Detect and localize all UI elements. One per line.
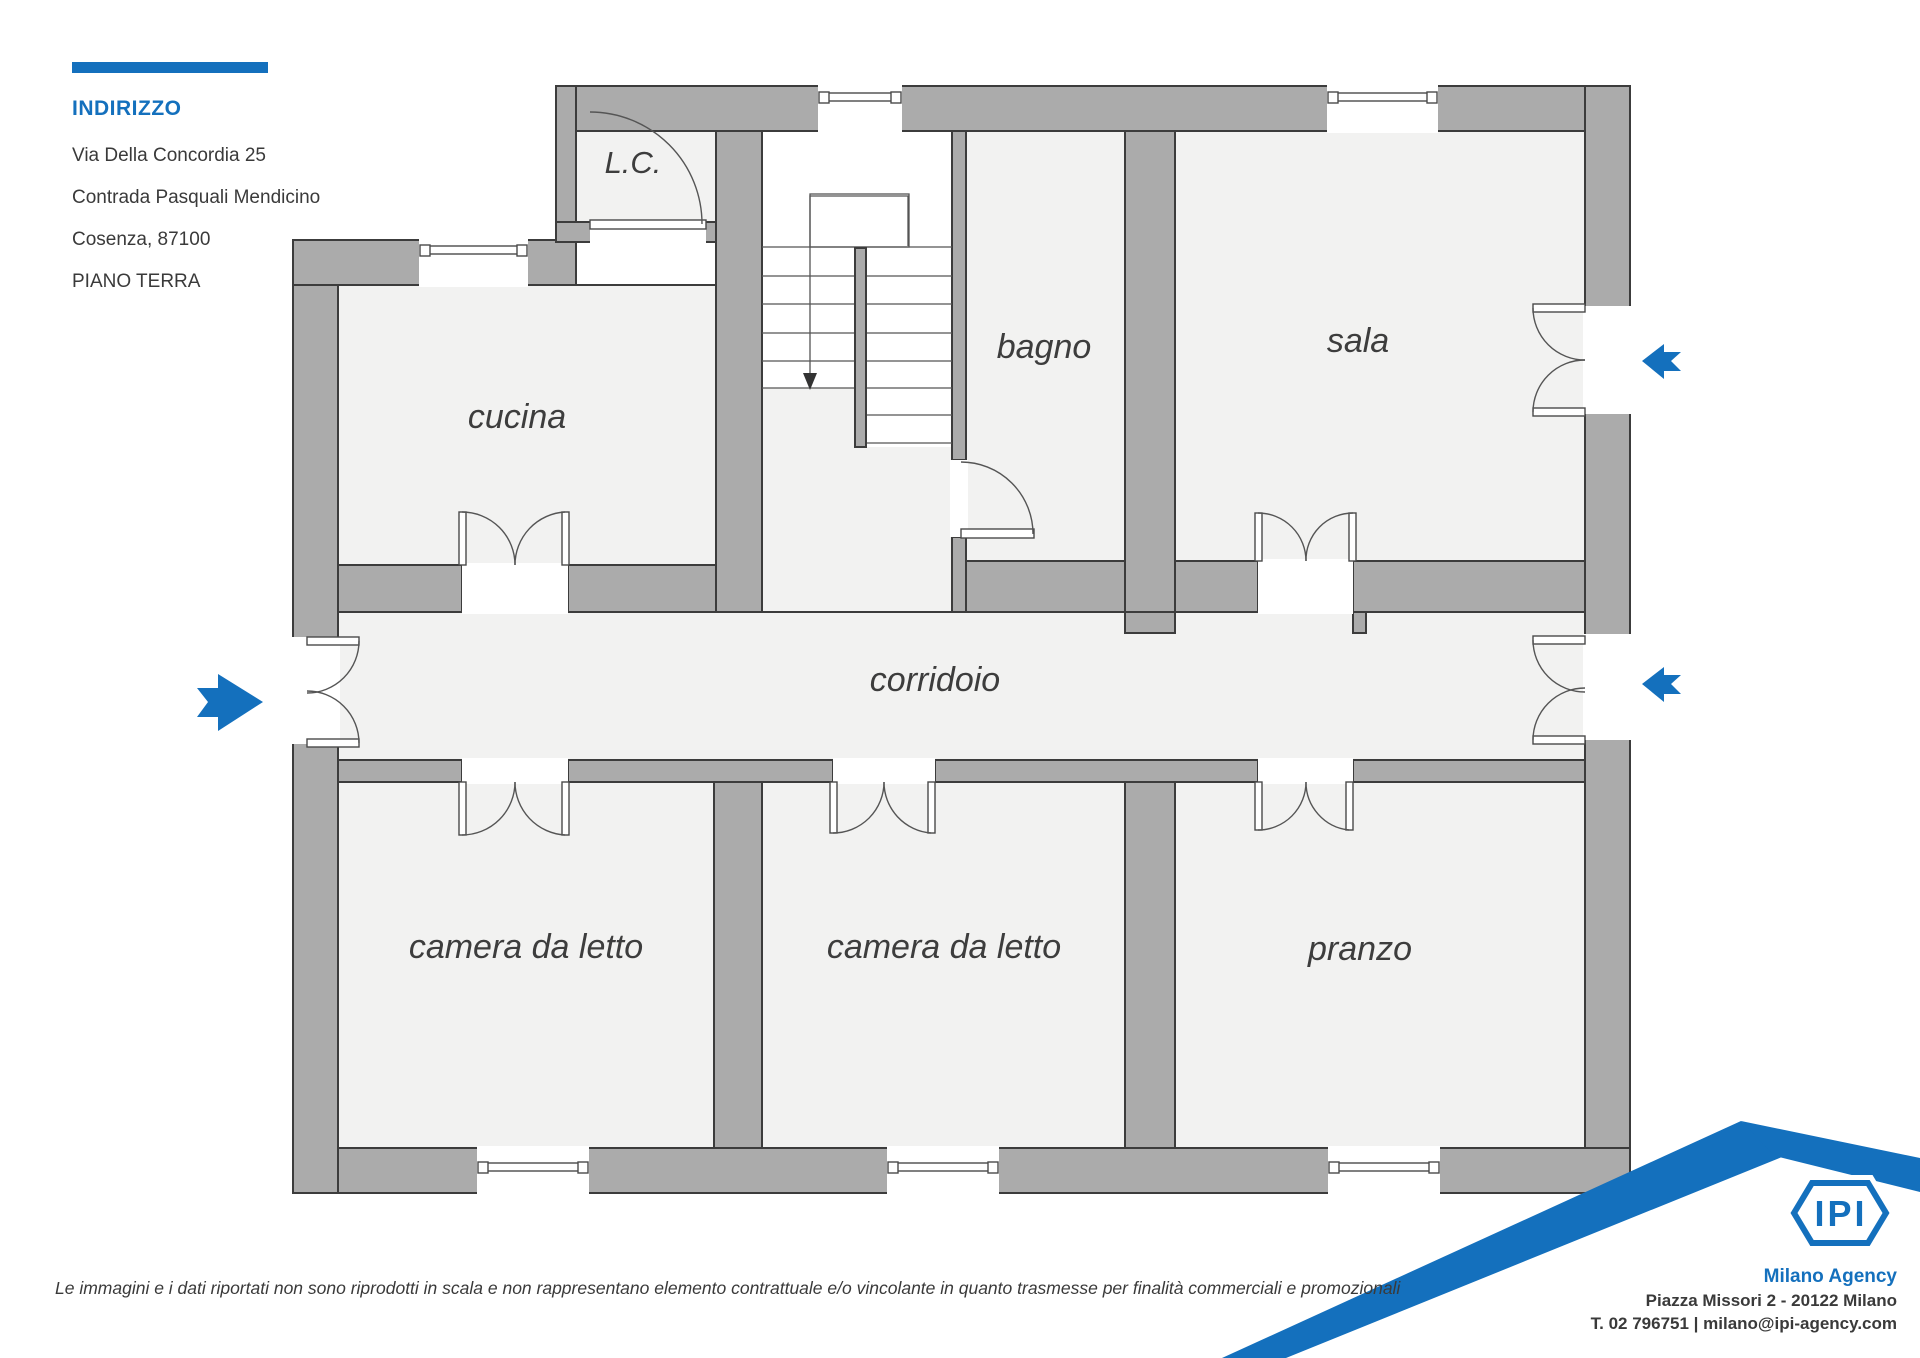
wall-corridor-bottom-a (338, 760, 462, 782)
window-camera2-icon (888, 1162, 998, 1173)
disclaimer-text: Le immagini e i dati riportati non sono … (55, 1278, 1405, 1299)
address-heading: INDIRIZZO (72, 97, 392, 121)
address-line-1: Via Della Concordia 25 (72, 145, 392, 167)
wall-corridor-bottom-d (1353, 760, 1585, 782)
agency-contact: T. 02 796751 | milano@ipi-agency.com (1591, 1314, 1897, 1334)
address-line-2: Contrada Pasquali Mendicino (72, 187, 392, 209)
label-corridoio: corridoio (870, 661, 1000, 699)
label-camera2: camera da letto (827, 928, 1061, 966)
wall-cameras-divider (714, 782, 762, 1148)
agency-address: Piazza Missori 2 - 20122 Milano (1591, 1291, 1897, 1311)
label-pranzo: pranzo (1307, 930, 1412, 968)
label-camera1: camera da letto (409, 928, 643, 966)
window-sala-icon (1328, 92, 1437, 103)
wall-corridor-top-c (966, 561, 1258, 612)
wall-corridor-bottom-c (935, 760, 1258, 782)
label-bagno: bagno (997, 328, 1092, 366)
wall-bagno-left-stub (952, 537, 966, 612)
window-pranzo-icon (1329, 1162, 1439, 1173)
wall-stub-sala-door (1353, 612, 1366, 633)
label-lc: L.C. (605, 145, 662, 180)
wall-corridor-bottom-b (568, 760, 833, 782)
address-block: INDIRIZZO Via Della Concordia 25 Contrad… (72, 62, 392, 313)
corridor-left-arrow-icon (1642, 667, 1681, 702)
address-accent-bar (72, 62, 268, 73)
ipi-logo-text: IPI (1814, 1193, 1867, 1234)
wall-camera-pranzo (1125, 782, 1175, 1148)
agency-block: Milano Agency Piazza Missori 2 - 20122 M… (1591, 1266, 1897, 1337)
entrance-right-arrow-icon (197, 674, 263, 731)
page: L.C. cucina bagno sala corridoio camera … (0, 0, 1920, 1358)
stair-rail (855, 248, 866, 447)
sala-left-arrow-icon (1642, 344, 1681, 379)
wall-stair-left (716, 131, 762, 612)
wall-corridor-top-d (1353, 561, 1585, 612)
wall-top (556, 86, 1630, 131)
floor-label: PIANO TERRA (72, 271, 392, 293)
agency-name: Milano Agency (1591, 1266, 1897, 1288)
wall-bagno-left (952, 131, 966, 460)
wall-corridor-top-a (338, 565, 462, 612)
wall-lc-left (556, 86, 576, 240)
label-sala: sala (1327, 322, 1389, 360)
window-cucina-icon (420, 245, 527, 256)
address-line-3: Cosenza, 87100 (72, 229, 392, 251)
window-stairs-icon (819, 92, 901, 103)
label-cucina: cucina (468, 398, 566, 436)
window-camera1-icon (478, 1162, 588, 1173)
wall-bagno-sala (1125, 131, 1175, 612)
wall-bagno-sala-stub (1125, 612, 1175, 633)
wall-corridor-top-b (568, 565, 716, 612)
